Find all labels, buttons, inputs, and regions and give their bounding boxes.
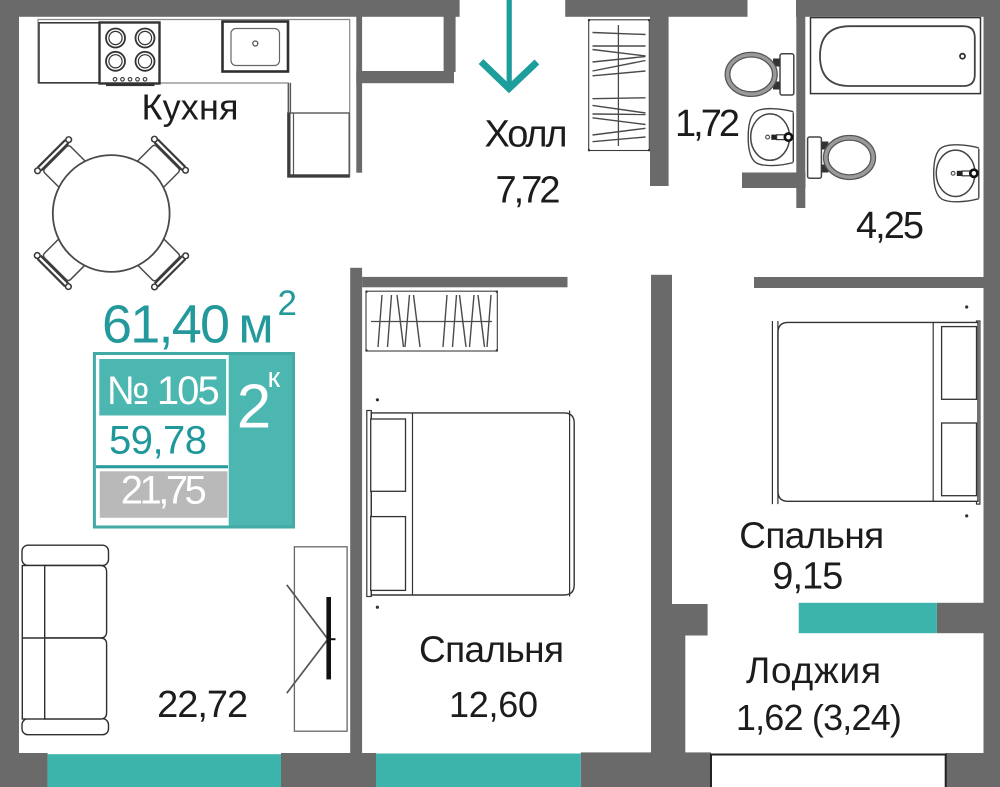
svg-text:21,75: 21,75	[121, 469, 207, 513]
svg-text:Спальня: Спальня	[739, 515, 884, 556]
svg-text:2: 2	[278, 284, 297, 323]
svg-text:7,72: 7,72	[496, 170, 561, 212]
svg-text:1,72: 1,72	[675, 103, 740, 145]
svg-text:Спальня: Спальня	[419, 629, 564, 670]
svg-text:Кухня: Кухня	[142, 87, 239, 128]
svg-text:12,60: 12,60	[449, 684, 538, 725]
svg-text:22,72: 22,72	[157, 684, 248, 726]
svg-text:Лоджия: Лоджия	[746, 650, 881, 691]
svg-text:к: к	[267, 362, 280, 394]
svg-text:2: 2	[237, 373, 271, 442]
svg-text:Холл: Холл	[485, 114, 568, 156]
svg-text:59,78: 59,78	[109, 419, 207, 463]
svg-text:№ 105: № 105	[107, 369, 220, 413]
svg-text:1,62 (3,24): 1,62 (3,24)	[736, 697, 902, 738]
svg-text:4,25: 4,25	[856, 205, 924, 247]
svg-text:9,15: 9,15	[772, 556, 843, 598]
svg-text:м: м	[239, 297, 274, 354]
svg-text:61,40: 61,40	[102, 295, 230, 355]
